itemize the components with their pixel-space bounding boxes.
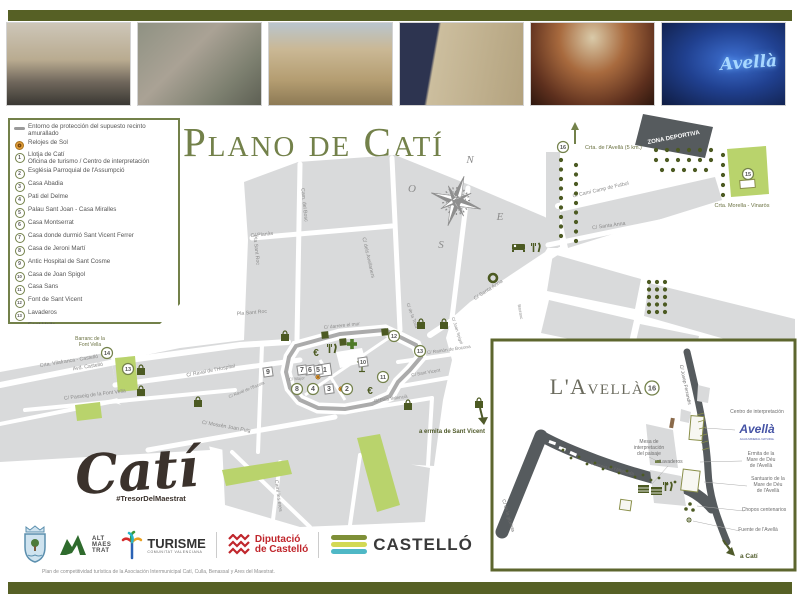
legend-num-icon: 9	[14, 259, 25, 269]
legend-num-icon: 12	[14, 298, 25, 308]
inset-label: del paisaje	[637, 451, 661, 457]
compass-north: N	[465, 154, 474, 166]
inset-num: 16	[648, 384, 656, 393]
castello-logo: CASTELLÓ	[329, 534, 473, 556]
street-label: Barranc	[517, 304, 525, 321]
svg-text:15: 15	[745, 172, 751, 178]
map-marker-4: 4	[308, 384, 319, 395]
legend-item-2: 2Església Parroquial de l'Assumpció	[14, 168, 175, 179]
svg-text:8: 8	[295, 386, 299, 393]
svg-text:€: €	[313, 348, 319, 359]
legend-item-label: Casa donde durmió Sant Vicent Ferrer	[28, 233, 134, 240]
legend-num-icon: 13	[14, 311, 25, 321]
footer-note: Plan de competitividad turística de la A…	[42, 569, 275, 575]
map-marker-14: 14	[102, 348, 113, 359]
legend-item-label: Antic Hospital de Sant Cosme	[28, 259, 110, 266]
tree-dots	[721, 153, 725, 197]
bag-icon	[475, 398, 483, 408]
inset-label: Centro de interpretación	[730, 409, 784, 415]
legend-item-12: 12Font de Sant Vicent	[14, 297, 175, 308]
svg-text:6: 6	[308, 367, 312, 374]
castello-text: CASTELLÓ	[373, 535, 473, 555]
map-marker-7: 7	[297, 365, 307, 375]
diputacio-zigzag-icon	[227, 534, 251, 556]
svg-text:4: 4	[311, 386, 315, 393]
svg-text:7: 7	[300, 367, 304, 374]
svg-text:13: 13	[417, 349, 423, 355]
legend-item-11: 11Casa Sans	[14, 284, 175, 295]
svg-text:14: 14	[104, 351, 111, 357]
legend-item-7: 7Casa donde durmió Sant Vicent Ferrer	[14, 233, 175, 244]
alt-maestrat-logo: ALT MAES TRAT	[58, 533, 111, 557]
legend-item-9: 9Antic Hospital de Sant Cosme	[14, 259, 175, 270]
svg-text:16: 16	[560, 145, 566, 151]
legend-item-6: 6Casa Montserrat	[14, 220, 175, 231]
inset-label: Chopos centenarios	[742, 507, 787, 513]
legend-item-4: 4Pati del Delme	[14, 194, 175, 205]
legend-num-icon: 10	[14, 272, 25, 282]
legend-item-label: Casa Abadia	[28, 181, 63, 188]
svg-text:5: 5	[316, 367, 320, 374]
bldg-icon	[381, 328, 389, 336]
svg-text:3: 3	[327, 386, 331, 393]
footer-logos: ALT MAES TRAT TURISME COMUNITAT VALENCIA…	[22, 524, 473, 566]
legend-sun-label: Relojes de Sol	[28, 140, 68, 147]
legend-item-label: Casa Montserrat	[28, 220, 74, 227]
inset-label: de l'Avellà	[757, 488, 780, 494]
street-label: C/ Joan Spigol	[451, 316, 464, 344]
compass-south: S	[438, 239, 444, 251]
legend-item-label: Casa de Jeroni Martí	[28, 246, 85, 253]
euro-icon: €	[313, 348, 319, 359]
svg-text:9: 9	[266, 369, 270, 376]
legend-num-icon: 1	[14, 153, 25, 163]
legend-num-icon: 3	[14, 182, 25, 192]
map-label: Crta. de l'Avellà (5 km.)	[585, 145, 642, 151]
turisme-text: TURISME	[147, 537, 206, 550]
palm-star-icon	[121, 530, 143, 560]
castello-stripes-icon	[329, 534, 369, 556]
legend-item-8: 8Casa de Jeroni Martí	[14, 246, 175, 257]
map-label: Crta. Morella - Vinaròs	[715, 203, 770, 209]
tree-dots	[559, 158, 563, 238]
inset-label: de l'Avellà	[750, 463, 773, 469]
legend-wall-label: Entorno de protección del supuesto recin…	[28, 124, 175, 138]
map-marker-13: 13	[415, 346, 426, 357]
inset-label: Fuente de l'Avellà	[738, 527, 778, 533]
map-marker-11: 11	[378, 372, 389, 383]
legend-item-label: Casa de Joan Spigol	[28, 272, 85, 279]
turisme-logo: TURISME COMUNITAT VALENCIANA	[121, 530, 206, 560]
ermita-building	[740, 179, 756, 188]
map-marker-10: 10	[358, 357, 368, 367]
ermita-arrow	[478, 408, 488, 425]
map-marker-12: 12	[389, 331, 400, 342]
legend-num-icon: 11	[14, 285, 25, 295]
svg-text:10: 10	[360, 360, 366, 366]
diputacio-text2: de Castelló	[255, 545, 308, 556]
inset-label: a Catí	[740, 553, 758, 560]
legend-num-icon: 2	[14, 169, 25, 179]
legend-item-13: 13Lavaderos	[14, 310, 175, 321]
legend-item-10: 10Casa de Joan Spigol	[14, 272, 175, 283]
sundial-icon	[14, 141, 25, 150]
map-marker-9: 9	[263, 367, 273, 377]
map-marker-8: 8	[292, 384, 303, 395]
logo-separator	[318, 532, 319, 558]
street-label: Font Vella	[79, 342, 101, 348]
map-marker-16: 16	[558, 142, 569, 153]
bldg-icon	[321, 331, 329, 339]
legend-num-icon: 4	[14, 195, 25, 205]
legend-item-label: Palau Sant Joan - Casa Miralles	[28, 207, 116, 214]
legend-item-label: Font de Sant Vicent	[28, 297, 82, 304]
legend-item-label: Lavaderos	[28, 310, 57, 317]
legend-item-label: Pati del Delme	[28, 194, 68, 201]
map-marker-15: 15	[743, 169, 754, 180]
logo-separator	[216, 532, 217, 558]
svg-text:1: 1	[323, 367, 327, 374]
legend-item-5: 5Palau Sant Joan - Casa Miralles	[14, 207, 175, 218]
diputacio-logo: Diputació de Castelló	[227, 534, 308, 556]
svg-text:13: 13	[125, 367, 131, 373]
tree-dots	[660, 168, 708, 172]
map-marker-2: 2	[342, 384, 353, 395]
svg-text:11: 11	[380, 375, 386, 381]
svg-text:€: €	[367, 386, 373, 397]
legend-num-icon: 5	[14, 208, 25, 218]
map-label: a ermita de Sant Vicent	[419, 429, 485, 435]
legend-item-1: 1Llotja de CatíOficina de turismo / Cent…	[14, 152, 175, 166]
wall-line-icon	[14, 125, 25, 130]
tree-dots	[574, 163, 578, 243]
legend-num-icon: 7	[14, 233, 25, 243]
cati-script-logo: Catí	[74, 440, 201, 502]
legend-wall-row: Entorno de protección del supuesto recin…	[14, 124, 175, 138]
compass-west: O	[408, 183, 416, 195]
mountain-m-icon	[58, 533, 88, 557]
avella-road-arrow	[571, 122, 579, 144]
inset-title: L'Avellà	[550, 374, 644, 399]
cati-brand: Catí #TresorDelMaestrat	[72, 444, 202, 503]
map-poster-page: Avellà Plano de Catí	[0, 0, 800, 600]
alt-maestrat-text: ALT MAES TRAT	[92, 536, 111, 555]
legend-item-label: Casa Sans	[28, 284, 58, 291]
svg-text:12: 12	[391, 334, 397, 340]
legend-box: Entorno de protección del supuesto recin…	[8, 118, 180, 324]
turisme-subtext: COMUNITAT VALENCIANA	[147, 550, 206, 554]
cati-coat-of-arms	[22, 524, 48, 566]
bldg-icon	[339, 338, 347, 346]
map-marker-13: 13	[123, 364, 134, 375]
avella-logo-caption: AGUA MINERAL NATURAL	[740, 437, 775, 441]
legend-item-label: Església Parroquial de l'Assumpció	[28, 168, 124, 175]
legend-num-icon: 8	[14, 246, 25, 256]
shield-icon	[22, 524, 48, 566]
legend-sun-row: Relojes de Sol	[14, 140, 175, 150]
avella-logo-script: Avellà	[738, 422, 775, 436]
compass-east: E	[496, 211, 504, 223]
legend-num-icon: 6	[14, 220, 25, 230]
svg-text:2: 2	[345, 386, 349, 393]
inset-label: Lavaderos	[659, 459, 683, 465]
legend-item-label: Llotja de CatíOficina de turismo / Centr…	[28, 152, 149, 166]
map-marker-3: 3	[324, 384, 334, 394]
euro-icon: €	[367, 386, 373, 397]
legend-item-3: 3Casa Abadia	[14, 181, 175, 192]
